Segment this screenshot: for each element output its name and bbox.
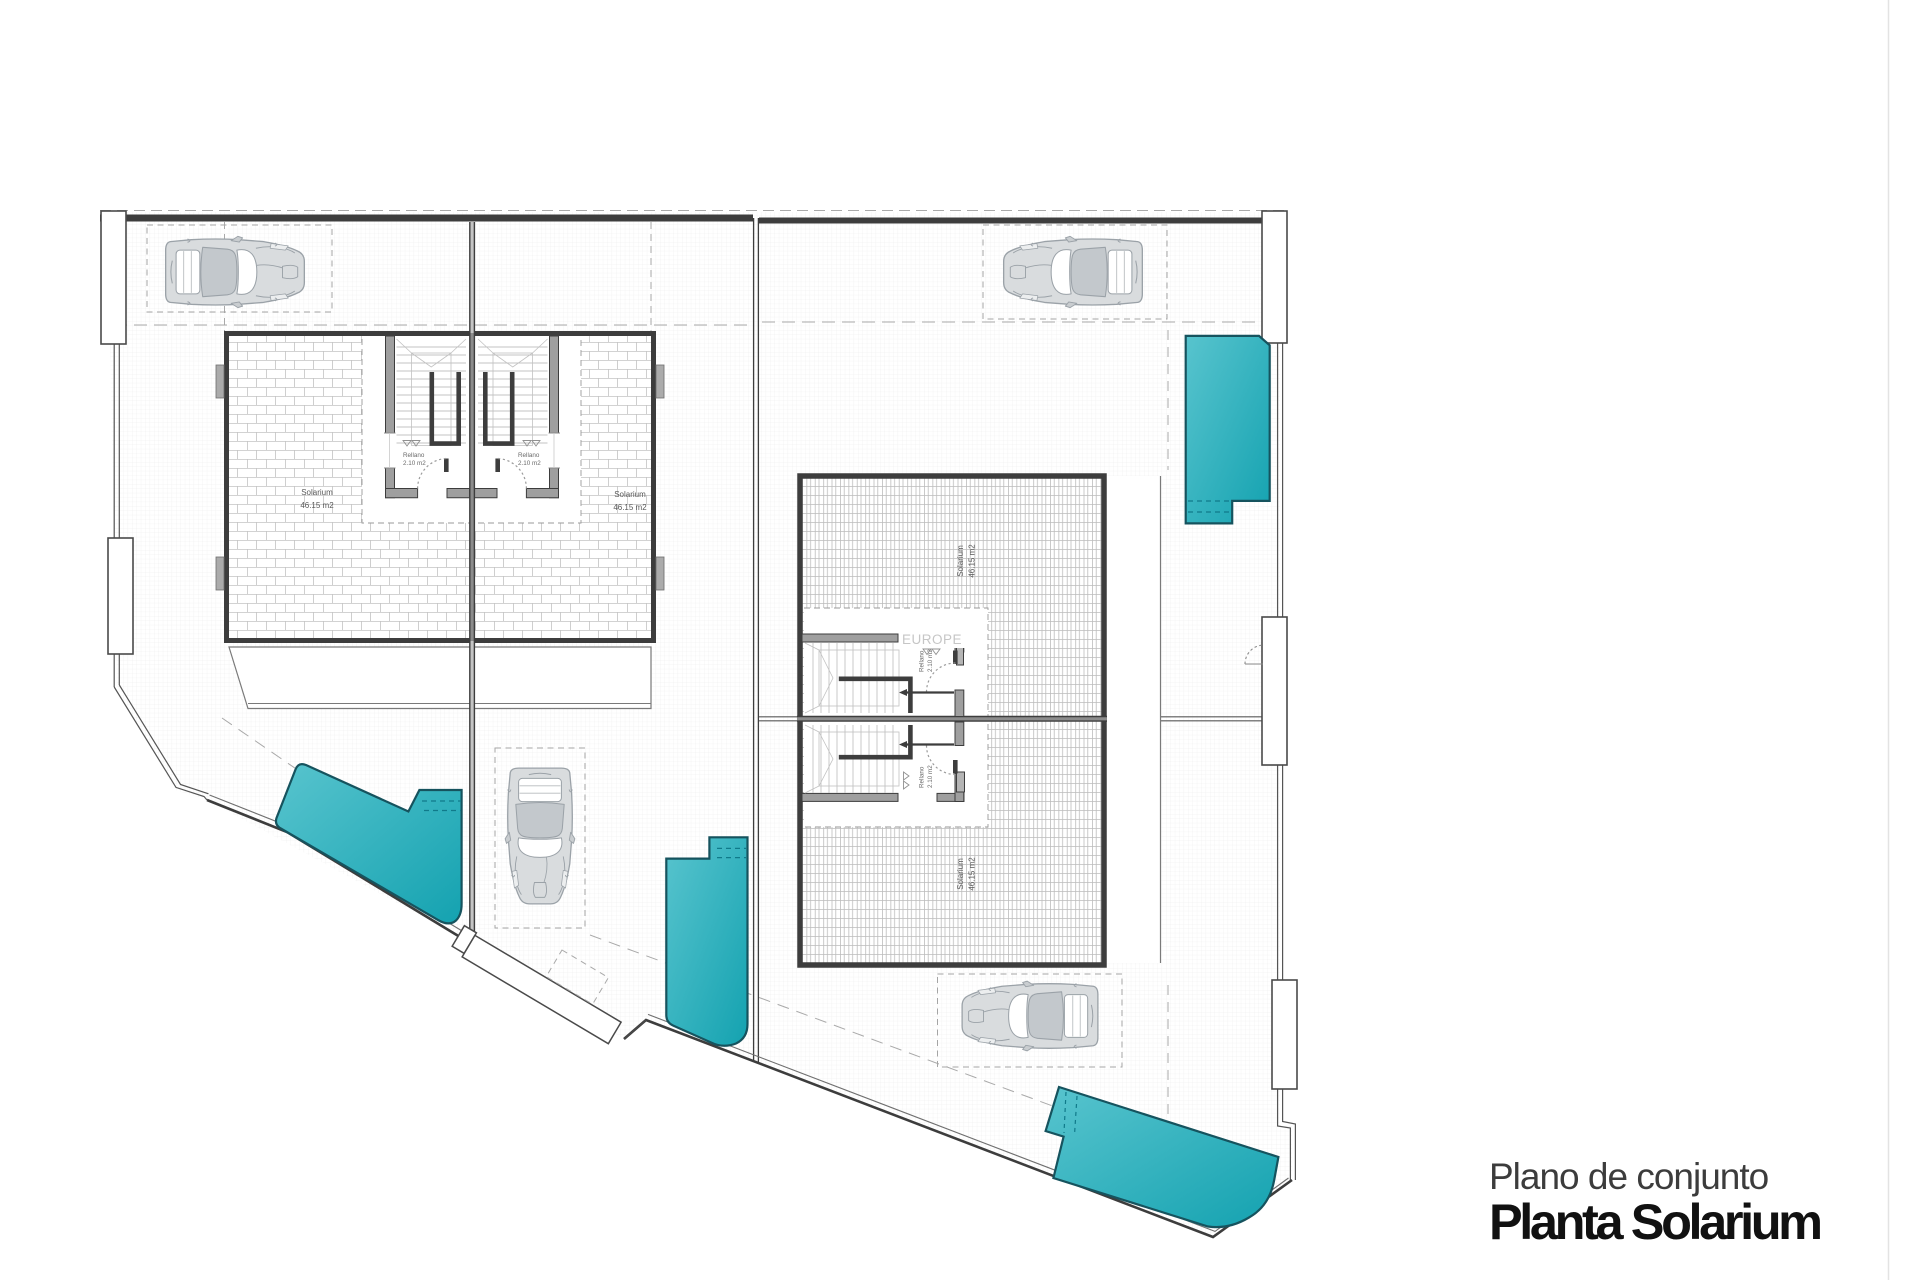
svg-text:46.15 m2: 46.15 m2 bbox=[300, 501, 334, 510]
svg-text:EUROPE: EUROPE bbox=[902, 632, 962, 647]
svg-text:2.10 m2: 2.10 m2 bbox=[927, 765, 934, 788]
svg-text:46.15 m2: 46.15 m2 bbox=[613, 503, 647, 512]
svg-text:Plano de conjunto: Plano de conjunto bbox=[1489, 1156, 1769, 1197]
svg-text:2.10 m2: 2.10 m2 bbox=[518, 460, 541, 467]
svg-text:Rellano: Rellano bbox=[403, 452, 425, 459]
svg-text:Solarium: Solarium bbox=[956, 545, 965, 577]
svg-text:Solarium: Solarium bbox=[301, 488, 333, 497]
svg-text:Planta Solarium: Planta Solarium bbox=[1489, 1193, 1820, 1250]
svg-text:Rellano: Rellano bbox=[518, 452, 540, 459]
svg-text:2.10 m2: 2.10 m2 bbox=[927, 649, 934, 672]
svg-text:Rellano: Rellano bbox=[919, 766, 926, 788]
svg-text:2.10 m2: 2.10 m2 bbox=[403, 460, 426, 467]
svg-text:Solarium: Solarium bbox=[956, 858, 965, 890]
svg-text:Rellano: Rellano bbox=[919, 650, 926, 672]
svg-text:46.15 m2: 46.15 m2 bbox=[968, 544, 977, 578]
svg-text:Solarium: Solarium bbox=[614, 490, 646, 499]
svg-text:46.15 m2: 46.15 m2 bbox=[968, 857, 977, 891]
